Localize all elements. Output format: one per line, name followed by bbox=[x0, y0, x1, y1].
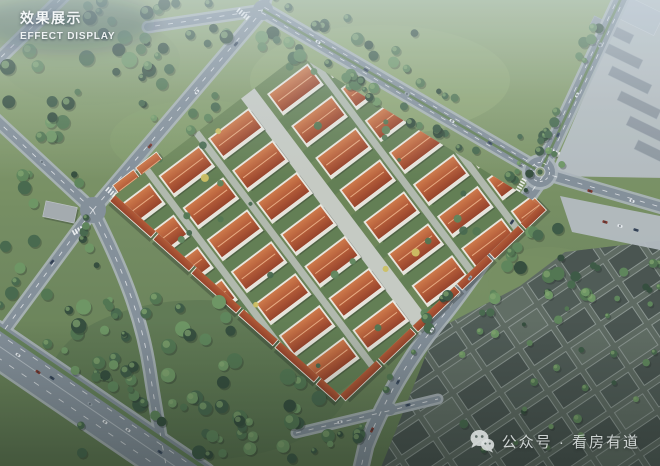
watermark-text: 公众号 · 看房有道 bbox=[502, 431, 640, 452]
title-chinese: 效果展示 bbox=[20, 8, 115, 28]
fx-layer bbox=[0, 0, 660, 466]
page-title: 效果展示 EFFECT DISPLAY bbox=[20, 8, 115, 42]
wechat-icon bbox=[469, 428, 495, 454]
aerial-rendering-image bbox=[0, 0, 660, 466]
effect-display-rendering: 效果展示 EFFECT DISPLAY 公众号 · 看房有道 bbox=[0, 0, 660, 466]
title-english: EFFECT DISPLAY bbox=[20, 31, 115, 42]
watermark: 公众号 · 看房有道 bbox=[469, 428, 640, 454]
